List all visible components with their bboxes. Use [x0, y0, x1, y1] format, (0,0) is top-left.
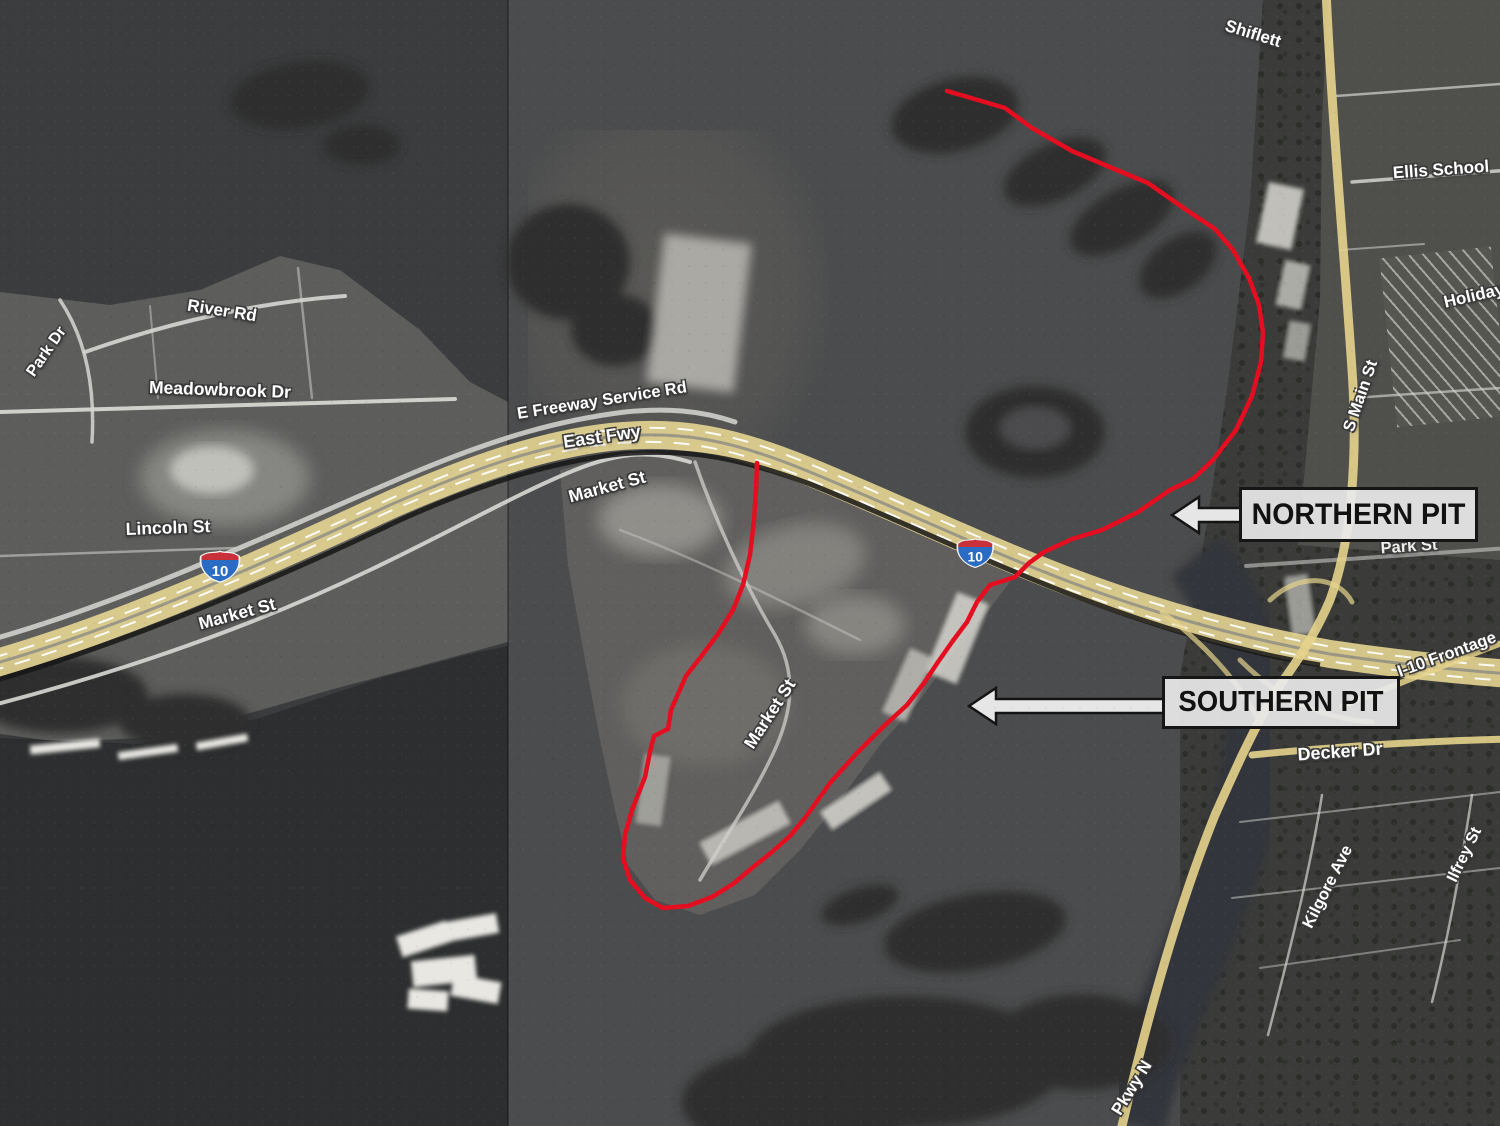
- northern-pit-callout-label: NORTHERN PIT: [1252, 498, 1466, 532]
- shield-route-number: 10: [212, 563, 229, 580]
- shield-route-number: 10: [968, 550, 984, 565]
- northern-pit-arrow: [1172, 497, 1241, 533]
- southern-pit-callout: SOUTHERN PIT: [1162, 676, 1400, 729]
- map-geometry: 10 10: [0, 0, 1500, 1126]
- road-label-lincoln-st: Lincoln St: [125, 516, 210, 540]
- southern-pit-callout-label: SOUTHERN PIT: [1178, 686, 1383, 719]
- aerial-map: 10 10 Shiflett Ellis School Holiday Rive…: [0, 0, 1500, 1126]
- southern-pit-arrow: [969, 688, 1164, 724]
- horseshoe-clearing: [999, 406, 1071, 450]
- barges-and-docks: [30, 734, 502, 1012]
- northern-pit-callout: NORTHERN PIT: [1239, 487, 1478, 542]
